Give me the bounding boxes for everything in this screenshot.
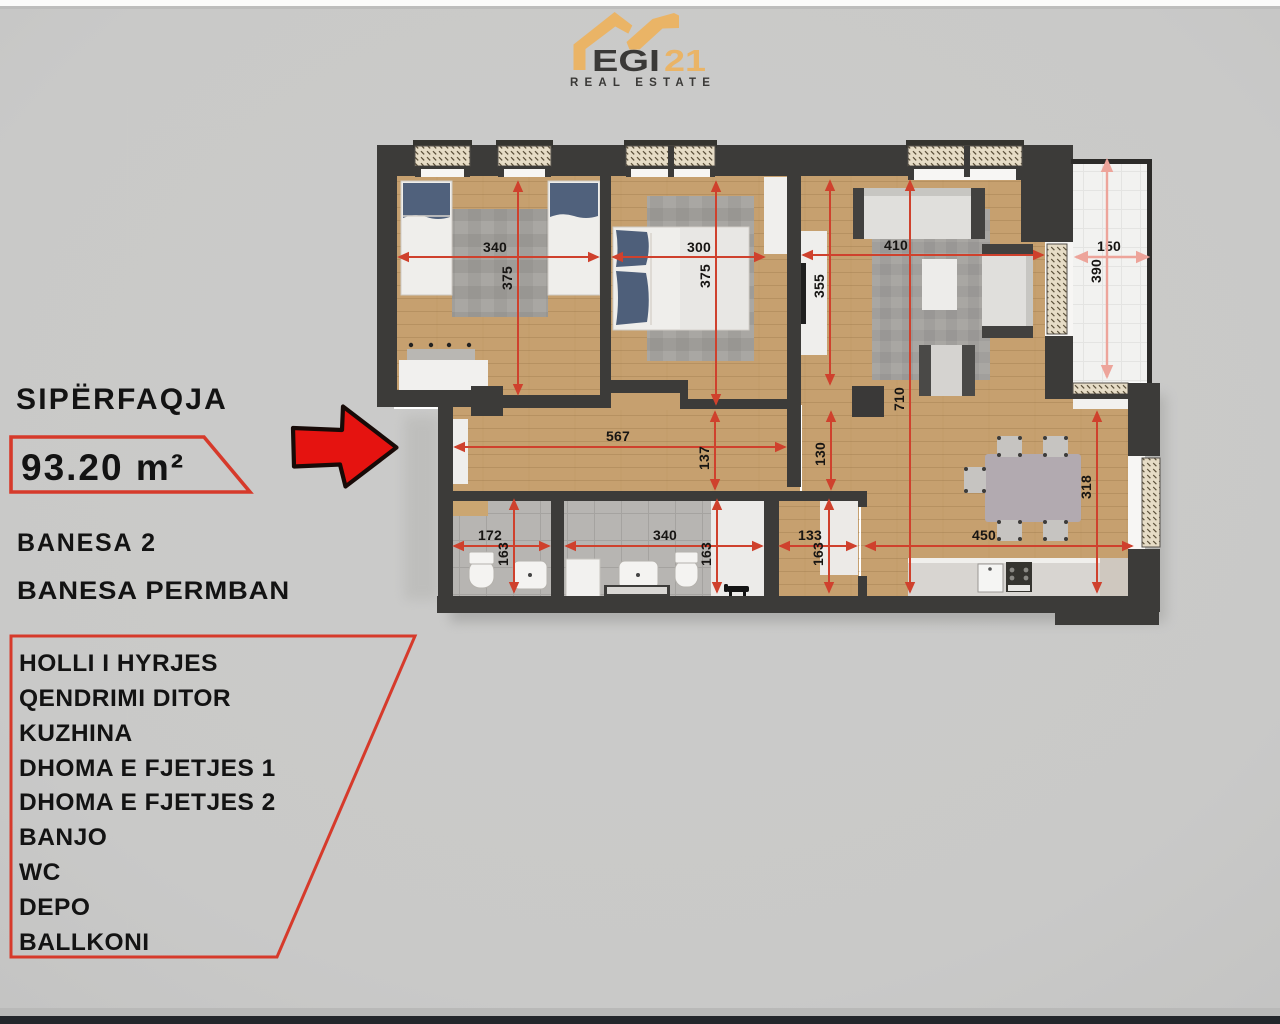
svg-text:BANESA 2: BANESA 2	[17, 529, 157, 557]
svg-text:375: 375	[697, 264, 713, 288]
svg-text:340: 340	[483, 239, 507, 255]
svg-text:133: 133	[798, 527, 822, 543]
svg-text:WC: WC	[19, 859, 61, 886]
svg-text:150: 150	[1097, 238, 1121, 254]
svg-text:HOLLI I HYRJES: HOLLI I HYRJES	[19, 650, 218, 677]
svg-text:567: 567	[606, 428, 630, 444]
svg-text:BANJO: BANJO	[19, 824, 107, 851]
svg-text:163: 163	[495, 542, 511, 566]
svg-text:355: 355	[811, 274, 827, 298]
svg-text:KUZHINA: KUZHINA	[19, 720, 133, 747]
svg-text:REAL ESTATE: REAL ESTATE	[570, 77, 716, 89]
svg-text:EGI: EGI	[592, 43, 660, 78]
svg-text:375: 375	[499, 266, 515, 290]
svg-text:93.20 m²: 93.20 m²	[21, 447, 185, 488]
svg-text:130: 130	[812, 442, 828, 466]
svg-text:340: 340	[653, 527, 677, 543]
svg-text:172: 172	[478, 527, 502, 543]
svg-text:BANESA PERMBAN: BANESA PERMBAN	[17, 577, 290, 605]
svg-text:318: 318	[1078, 475, 1094, 499]
svg-text:DEPO: DEPO	[19, 894, 90, 921]
svg-text:710: 710	[891, 387, 907, 411]
svg-text:137: 137	[696, 446, 712, 470]
svg-text:BALLKONI: BALLKONI	[19, 929, 150, 956]
svg-text:300: 300	[687, 239, 711, 255]
svg-text:DHOMA E FJETJES 2: DHOMA E FJETJES 2	[19, 789, 276, 816]
svg-text:410: 410	[884, 237, 908, 253]
svg-text:21: 21	[664, 43, 706, 78]
svg-text:450: 450	[972, 527, 996, 543]
svg-text:DHOMA E FJETJES 1: DHOMA E FJETJES 1	[19, 755, 276, 782]
svg-text:QENDRIMI DITOR: QENDRIMI DITOR	[19, 685, 231, 712]
svg-text:163: 163	[698, 542, 714, 566]
svg-text:163: 163	[810, 542, 826, 566]
svg-text:390: 390	[1088, 259, 1104, 283]
svg-text:SIPËRFAQJA: SIPËRFAQJA	[16, 383, 228, 416]
